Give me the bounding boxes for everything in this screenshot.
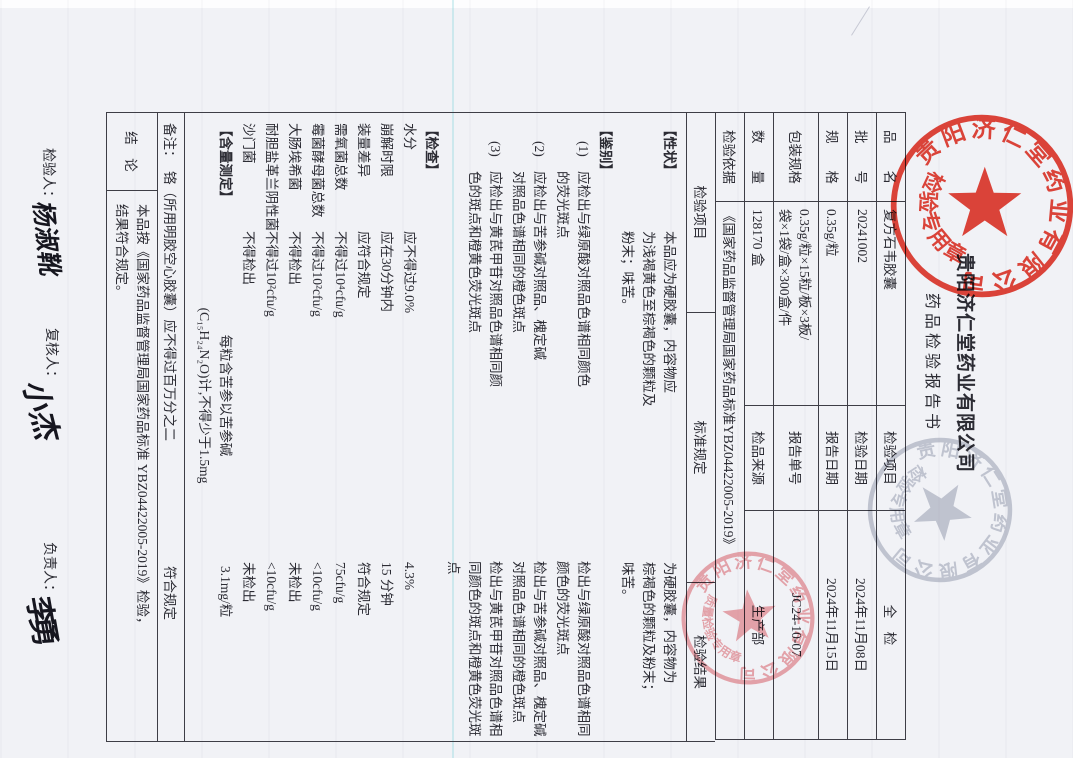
row-assay: 【含量测定】 每粒含苦参以苦参碱 (C₁₅H₂₄N₂O)计,不得少于1.5mg … bbox=[193, 113, 237, 741]
spec-label: 规 格 bbox=[819, 113, 848, 202]
report-date-value: 2024年11月15日 bbox=[819, 511, 848, 740]
result-table-header: 检验项目 标准规定 检验结果 bbox=[686, 113, 715, 741]
ecoli-standard: 不得检出 bbox=[284, 231, 305, 558]
batch-no-value: 20241002 bbox=[848, 202, 877, 406]
identification-3-result: 检出与黄芪甲苷对照品色谱相同颜色的斑点和橙黄色荧光斑点 bbox=[443, 557, 506, 741]
ecoli-label: 大肠埃希菌 bbox=[284, 113, 305, 231]
fill-variation-standard: 应符合规定 bbox=[353, 231, 374, 558]
bile-tolerant-result: <10cfu/g bbox=[261, 558, 282, 741]
scanned-report-page: { "company": "贵阳济仁堂药业有限公司", "report_titl… bbox=[0, 0, 1073, 758]
moisture-standard: 应不得过9.0% bbox=[399, 231, 420, 558]
approver-label: 负责人： bbox=[41, 542, 56, 598]
package-spec-label: 包装规格 bbox=[774, 113, 819, 202]
report-no-label: 报告单号 bbox=[774, 406, 819, 511]
appearance-result: 为硬胶囊，内容物为 棕褐色的颗粒及粉末； 味苦。 bbox=[617, 558, 680, 741]
result-table-body: 【性状】 本品应为硬胶囊，内容物应 为浅褐黄色至棕褐色的颗粒及 粉末；味苦。 为… bbox=[185, 113, 686, 741]
ecoli-result: 未检出 bbox=[284, 558, 305, 741]
mold-yeast-label: 霉菌酵母菌总数 bbox=[307, 113, 328, 231]
batch-no-label: 批 号 bbox=[848, 113, 877, 202]
identification-2-standard: 应检出与苦参碱对照品、槐定碱 对照品色谱相同的橙色斑点 bbox=[508, 159, 550, 557]
identification-1-marker: (1) bbox=[552, 113, 594, 159]
conclusion-text: 本品按《国家药品监督管理局国家药品标准 YBZ04422005-2019》检验，… bbox=[107, 191, 157, 741]
bile-tolerant-standard: 不得过10²cfu/g bbox=[261, 231, 282, 558]
disintegration-result: 15 分钟 bbox=[376, 558, 397, 741]
row-identification-2: (2) 应检出与苦参碱对照品、槐定碱 对照品色谱相同的橙色斑点 检出与苦参碱对照… bbox=[507, 113, 551, 741]
identification-2-marker: (2) bbox=[508, 113, 550, 159]
report-document: 贵阳济仁堂药业有限公司 药品检验报告书 品 名 复方石韦胶囊 检验项目 全 检 … bbox=[70, 112, 1073, 742]
row-identification-3: (3) 应检出与黄芪甲苷对照品色谱相同颜 色的斑点和橙黄色荧光斑点 检出与黄芪甲… bbox=[442, 113, 507, 741]
row-appearance: 【性状】 本品应为硬胶囊，内容物应 为浅褐黄色至棕褐色的颗粒及 粉末；味苦。 为… bbox=[616, 113, 681, 741]
table-row: 规 格 0.35g/粒 报告日期 2024年11月15日 bbox=[819, 113, 848, 740]
moisture-result: 4.3% bbox=[399, 558, 420, 741]
row-moisture: 水分 应不得过9.0% 4.3% bbox=[398, 113, 421, 741]
remark-label: 备注： bbox=[161, 113, 181, 171]
approver-signature-group: 负责人：李勇 bbox=[22, 542, 66, 638]
row-disintegration: 崩解时限 应在30分钟内 15 分钟 bbox=[375, 113, 398, 741]
package-spec-value: 0.35g/粒×15粒/板×3板/ 袋×1袋/盒×300盒/件 bbox=[774, 202, 819, 406]
row-fill-variation: 装量差异 应符合规定 符合规定 bbox=[352, 113, 375, 741]
salmonella-label: 沙门菌 bbox=[238, 113, 259, 231]
reviewer-label: 复核人： bbox=[43, 328, 58, 384]
inspection-date-label: 检验日期 bbox=[848, 406, 877, 511]
sample-source-value: 生产部 bbox=[745, 511, 774, 740]
identification-section-label: 【鉴别】 bbox=[595, 113, 616, 741]
table-row: 批 号 20241002 检验日期 2024年11月08日 bbox=[848, 113, 877, 740]
scanner-scratch bbox=[851, 6, 870, 35]
result-table: 检验项目 标准规定 检验结果 【性状】 本品应为硬胶囊，内容物应 为浅褐黄色至棕… bbox=[106, 112, 715, 742]
product-name-label: 品 名 bbox=[877, 113, 906, 202]
inspection-date-value: 2024年11月08日 bbox=[848, 511, 877, 740]
inspection-items-label: 检验项目 bbox=[877, 406, 906, 511]
table-row: 检验依据 《国家药品监督管理局国家药品标准YBZ04422005-2019》 bbox=[716, 113, 745, 740]
remark-row: 备注： 铬（所用明胶空心胶囊）应不得过百万分之二 符合规定 bbox=[158, 113, 185, 741]
fill-variation-label: 装量差异 bbox=[353, 113, 374, 231]
product-name-value: 复方石韦胶囊 bbox=[877, 202, 906, 406]
identification-1-standard: 应检出与绿原酸对照品色谱相同颜色 的荧光斑点 bbox=[552, 159, 594, 557]
inspector-label: 检验人： bbox=[40, 148, 55, 204]
sample-source-label: 检品来源 bbox=[745, 406, 774, 511]
sample-info-table: 品 名 复方石韦胶囊 检验项目 全 检 批 号 20241002 检验日期 20… bbox=[715, 112, 906, 740]
inspection-items-value: 全 检 bbox=[877, 511, 906, 740]
reviewer-signature: 小杰 bbox=[14, 382, 74, 442]
bile-tolerant-label: 耐胆盐革兰阴性菌 bbox=[261, 113, 282, 231]
col-header-result: 检验结果 bbox=[687, 583, 715, 741]
row-identification-1: (1) 应检出与绿原酸对照品色谱相同颜色 的荧光斑点 检出与绿原酸对照品色谱相同… bbox=[551, 113, 595, 741]
identification-3-marker: (3) bbox=[443, 113, 506, 159]
remark-result: 符合规定 bbox=[161, 558, 181, 741]
table-row: 包装规格 0.35g/粒×15粒/板×3板/ 袋×1袋/盒×300盒/件 报告单… bbox=[774, 113, 819, 740]
salmonella-standard: 不得检出 bbox=[238, 231, 259, 558]
document-header: 贵阳济仁堂药业有限公司 药品检验报告书 bbox=[922, 112, 1073, 614]
inspector-signature-group: 检验人：杨淑靴 bbox=[30, 148, 66, 277]
identification-3-standard: 应检出与黄芪甲苷对照品色谱相同颜 色的斑点和橙黄色荧光斑点 bbox=[443, 159, 506, 557]
appearance-standard: 本品应为硬胶囊，内容物应 为浅褐黄色至棕褐色的颗粒及 粉末；味苦。 bbox=[617, 231, 680, 558]
row-bile-tolerant: 耐胆盐革兰阴性菌 不得过10²cfu/g <10cfu/g bbox=[260, 113, 283, 741]
disintegration-label: 崩解时限 bbox=[376, 113, 397, 231]
remark-text: 铬（所用明胶空心胶囊）应不得过百万分之二 bbox=[161, 171, 181, 558]
disintegration-standard: 应在30分钟内 bbox=[376, 231, 397, 558]
table-row: 品 名 复方石韦胶囊 检验项目 全 检 bbox=[877, 113, 906, 740]
company-name: 贵阳济仁堂药业有限公司 bbox=[953, 112, 980, 614]
quantity-value: 128170 盒 bbox=[745, 202, 774, 406]
row-aerobic-count: 需氧菌总数 不得过10⁴cfu/g 75cfu/g bbox=[329, 113, 352, 741]
inspector-signature: 杨淑靴 bbox=[26, 201, 70, 278]
col-header-item: 检验项目 bbox=[687, 113, 715, 313]
row-mold-yeast-count: 霉菌酵母菌总数 不得过10²cfu/g <10cfu/g bbox=[306, 113, 329, 741]
assay-standard: 每粒含苦参以苦参碱 (C₁₅H₂₄N₂O)计,不得少于1.5mg bbox=[194, 233, 236, 558]
inspection-basis-value: 《国家药品监督管理局国家药品标准YBZ04422005-2019》 bbox=[716, 202, 745, 740]
reviewer-signature-group: 复核人：小杰 bbox=[22, 328, 66, 442]
appearance-section-label: 【性状】 bbox=[617, 113, 680, 231]
table-row: 数 量 128170 盒 检品来源 生产部 bbox=[745, 113, 774, 740]
salmonella-result: 未检出 bbox=[238, 558, 259, 741]
inspection-basis-label: 检验依据 bbox=[716, 113, 745, 202]
fill-variation-result: 符合规定 bbox=[353, 558, 374, 741]
spec-value: 0.35g/粒 bbox=[819, 202, 848, 406]
approver-signature: 李勇 bbox=[18, 595, 69, 639]
aerobic-count-result: 75cfu/g bbox=[330, 558, 351, 741]
col-header-standard: 标准规定 bbox=[687, 313, 715, 583]
mold-yeast-result: <10cfu/g bbox=[307, 558, 328, 741]
aerobic-count-label: 需氧菌总数 bbox=[330, 113, 351, 231]
identification-2-result: 检出与苦参碱对照品、槐定碱对照品色谱相同的橙色斑点 bbox=[508, 557, 550, 741]
moisture-label: 水分 bbox=[399, 113, 420, 231]
quantity-label: 数 量 bbox=[745, 113, 774, 202]
scan-background: 贵阳济仁堂药业有限公司 药品检验报告书 品 名 复方石韦胶囊 检验项目 全 检 … bbox=[0, 0, 1073, 758]
mold-yeast-standard: 不得过10²cfu/g bbox=[307, 231, 328, 558]
row-salmonella: 沙门菌 不得检出 未检出 bbox=[237, 113, 260, 741]
report-date-label: 报告日期 bbox=[819, 406, 848, 511]
signature-row: 检验人：杨淑靴 复核人：小杰 负责人：李勇 bbox=[12, 112, 72, 742]
assay-result: 3.1mg/粒 bbox=[194, 558, 236, 741]
row-ecoli: 大肠埃希菌 不得检出 未检出 bbox=[283, 113, 306, 741]
identification-1-result: 检出与绿原酸对照品色谱相同颜色的荧光斑点 bbox=[552, 557, 594, 741]
aerobic-count-standard: 不得过10⁴cfu/g bbox=[330, 231, 351, 558]
assay-section-label: 【含量测定】 bbox=[194, 113, 236, 233]
report-no-value: JC24-10-07 bbox=[774, 511, 819, 740]
conclusion-label: 结 论 bbox=[107, 113, 157, 191]
conclusion-row: 结 论 本品按《国家药品监督管理局国家药品标准 YBZ04422005-2019… bbox=[107, 113, 158, 741]
check-section-label: 【检查】 bbox=[421, 113, 442, 741]
report-title: 药品检验报告书 bbox=[922, 112, 946, 614]
